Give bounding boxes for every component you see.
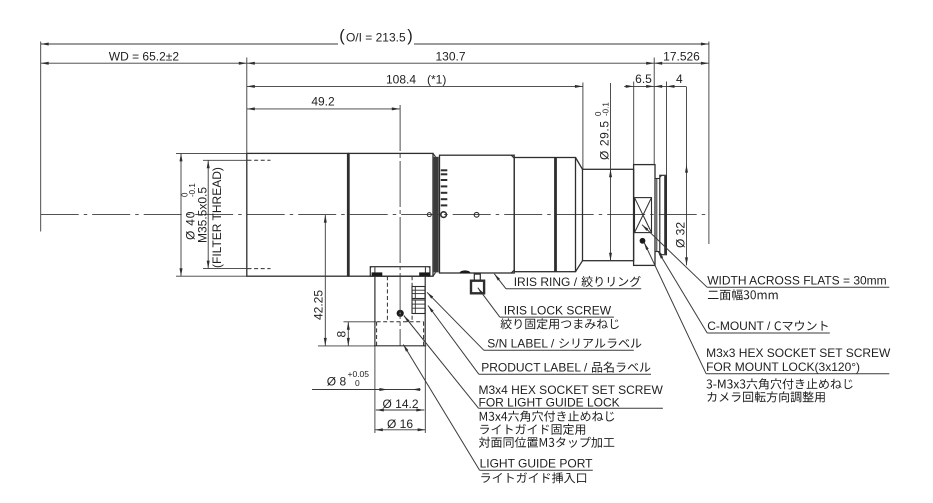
svg-text:IRIS RING /: IRIS RING / (514, 275, 578, 289)
svg-text:Ø 29.5: Ø 29.5 (598, 120, 612, 160)
svg-text:IRIS LOCK SCREW: IRIS LOCK SCREW (504, 303, 612, 317)
svg-text:-0.1: -0.1 (602, 102, 611, 116)
svg-text:6.5: 6.5 (635, 72, 652, 86)
svg-text:Ø 32: Ø 32 (673, 222, 687, 248)
svg-text:FOR LIGHT GUIDE LOCK: FOR LIGHT GUIDE LOCK (479, 395, 620, 409)
svg-text:M35.5x0.5: M35.5x0.5 (196, 187, 210, 243)
svg-text:WD = 65.2±2: WD = 65.2±2 (109, 50, 180, 64)
svg-text:Ø 14.2: Ø 14.2 (382, 397, 418, 411)
svg-text:42.25: 42.25 (312, 290, 326, 320)
svg-text:17.526: 17.526 (663, 50, 700, 64)
svg-text:Ø 8: Ø 8 (327, 375, 347, 389)
svg-text:M3x3 HEX SOCKET SET SCREW: M3x3 HEX SOCKET SET SCREW (706, 346, 891, 360)
svg-text:Ø 16: Ø 16 (387, 417, 413, 431)
svg-text:WIDTH ACROSS FLATS = 30mm: WIDTH ACROSS FLATS = 30mm (707, 274, 886, 288)
svg-text:49.2: 49.2 (311, 94, 335, 108)
svg-text:(FILTER THREAD): (FILTER THREAD) (210, 167, 224, 268)
svg-text:8: 8 (334, 331, 348, 338)
svg-text:4: 4 (676, 72, 683, 86)
svg-text:108.4: 108.4 (386, 72, 416, 86)
svg-text:O/I = 213.5: O/I = 213.5 (346, 30, 406, 44)
svg-text:130.7: 130.7 (435, 50, 465, 64)
svg-text:FOR MOUNT LOCK(3x120°): FOR MOUNT LOCK(3x120°) (706, 360, 860, 374)
svg-text:(: ( (339, 27, 345, 45)
svg-text:LIGHT GUIDE PORT: LIGHT GUIDE PORT (480, 456, 594, 470)
svg-text:S/N LABEL /: S/N LABEL / (487, 337, 555, 351)
svg-text:(*1): (*1) (427, 72, 446, 86)
svg-text:PRODUCT LABEL /: PRODUCT LABEL / (481, 361, 588, 375)
svg-text:0: 0 (355, 378, 360, 388)
svg-text:): ) (407, 27, 413, 45)
svg-text:C-MOUNT /: C-MOUNT / (707, 319, 771, 333)
